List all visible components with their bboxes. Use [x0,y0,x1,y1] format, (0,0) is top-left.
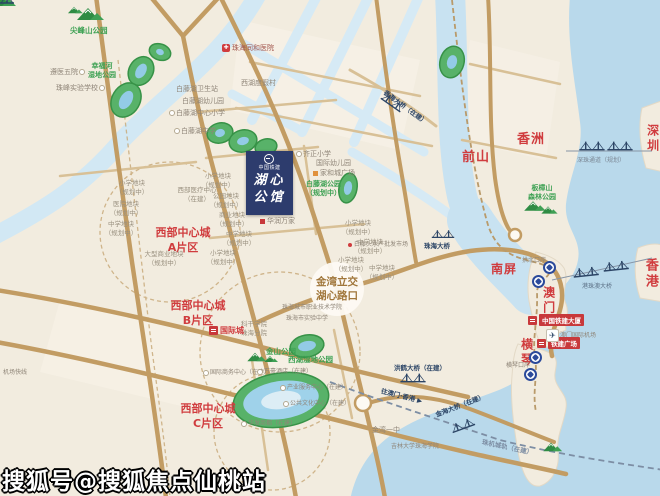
poi-zhufeng-school: 珠峰实验学校 [56,84,106,93]
developer-name: 中国铁建 [258,165,280,171]
parcel-middle-school: 中学地块（规划中） [101,220,141,238]
parcel-middle-school: 中学地块（规划中） [350,238,390,256]
hospital-cross-icon: ✚ [222,44,230,52]
poi-baiteng-middle-school: 白藤湖中学 [173,127,216,136]
district-label-xiangzhou: 香洲 [517,132,545,149]
poi-jinwan-no1-school: 金湾一中 [372,426,400,435]
poi-marker-icon [99,85,105,91]
parcel-school: 小学地块（规划中） [338,219,378,237]
parcel-middle-school: 中学地块（规划中） [362,264,402,282]
bridge-label-shenzhu: 深珠通道（规划） [577,157,625,165]
district-label-aomen: 澳门 [540,286,556,316]
project-name: 湖心 公馆 [253,173,285,207]
poi-culture-center: 公共文化中心（在建） [282,400,350,408]
district-label-nanping: 南屏 [491,262,517,278]
watermark: 搜狐号@搜狐焦点仙桃站 [2,462,266,496]
crcc-mini-logo-icon [537,339,546,348]
poi-marker-icon [280,385,286,391]
bridge-label-honghe: 洪鹤大桥（在建） [394,364,446,372]
poi-shiyan-middle-school: 珠海市实验中学 [286,315,328,323]
poi-qizheng-primary: 齐正小学 [295,150,331,159]
poi-marker-icon [257,369,263,375]
parcel-hospital: 医院地块（规划中） [106,200,146,218]
park-label-banzhangshan: 板樟山森林公园 [528,184,556,202]
poi-gongbei-port: 拱北口岸 [522,257,546,265]
park-label-xingfuhe: 幸福河湿地公园 [88,62,116,80]
landmark-intl-city: 国际城 [209,325,244,336]
poi-city-college: 珠海城市职业技术学院 [282,304,342,312]
poi-marker-icon [296,151,302,157]
plaza-marker-icon [313,171,318,176]
poi-intl-kindergarten: 国际幼儿园 [316,159,351,168]
road-sign-airport-express: 机场快线 [3,369,27,377]
bridge-label-zhuhai: 珠海大桥 [424,242,450,250]
poi-marker-icon [174,128,180,134]
district-label-shenzhen: 深圳 [644,124,660,154]
park-label-jianfengshan: 尖峰山公园 [70,26,108,36]
market-marker-icon [260,219,265,224]
metro-station-icon [524,368,537,381]
crcc-logo-icon [264,154,274,164]
parcel-school: 小学地块（规划中） [198,172,238,190]
poi-marker-icon [79,69,85,75]
airport-icon: ✈ [546,329,559,342]
poi-marker-icon [283,401,289,407]
poi-baiteng-kindergarten: 白藤湖幼儿园 [182,97,224,106]
poi-jilin-university: 吉林大学珠海学院 [391,443,439,451]
poi-marker-icon [169,110,175,116]
junction-label-jinwan-interchange: 金湾立交湖心路口 [309,275,365,303]
real-estate-location-map: 中国铁建 湖心 公馆 尖峰山公园 幸福河湿地公园 白藤湖公园（规划中） 西湖湿地… [0,0,660,496]
parcel-large-business: 大型商业地块（规划中） [138,250,190,268]
bridge-label-hzmb: 港珠澳大桥 [582,283,612,291]
poi-xihu-resort: 西湖度假村 [241,79,276,88]
parcel-school: 小学地块（规划中） [112,179,152,197]
developer-logo: 中国铁建 [258,154,280,171]
parcel-school: 小学地块（规划中） [203,249,243,267]
zone-label-c: 西部中心城C片区 [175,402,241,432]
poi-tonghe-hospital: ✚珠海同和医院 [222,44,274,53]
metro-station-icon [532,275,545,288]
poi-baiteng-clinic: 白藤湖卫生站 [176,85,218,94]
poi-baiteng-primary-school: 白藤湖中心小学 [168,109,225,118]
landmark-crcc-tower: 中国铁建大厦 [528,314,584,326]
poi-marker-icon [203,370,209,376]
metro-station-icon [543,261,556,274]
poi-industry-service-center: 产业服务中心（在建） [279,384,347,392]
district-label-xianggang: 香港 [641,258,658,290]
intl-city-logo-icon [209,326,218,335]
poi-wanhao-hotel: 万豪酒店（在建） [256,368,312,376]
poi-marker-icon [241,421,247,427]
poi-jiahe-plaza: 家和城广场 [313,169,355,178]
project-marker-huxin-mansion: 中国铁建 湖心 公馆 [246,151,293,215]
poi-zunyi-hospital: 遵医五院 [50,68,86,77]
poi-huarun-market: 华润万家 [260,217,295,226]
park-label-baitenghu: 白藤湖公园（规划中） [306,180,341,198]
poi-huafa-mall: 华发商都（在建） [240,420,296,428]
park-label-jinshan: 金山公园 [266,347,296,357]
parcel-park: 公园地块（规划中） [206,192,246,210]
district-label-qianshan: 前山 [462,150,490,167]
metro-station-icon [529,351,542,364]
parcel-middle-school: 中学地块（规划中） [219,230,259,248]
crcc-mini-logo-icon [528,316,537,325]
